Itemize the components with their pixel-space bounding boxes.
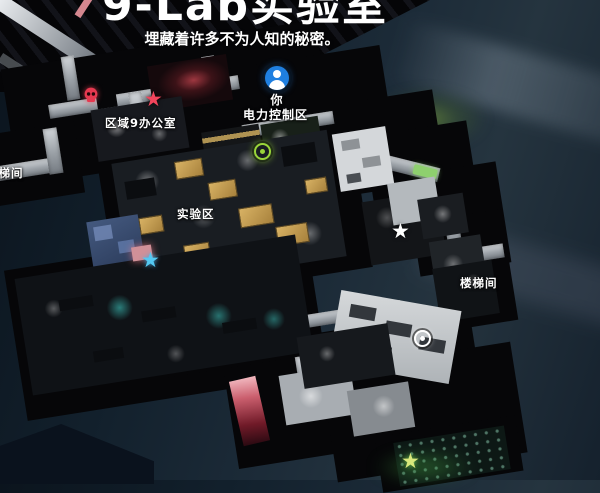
objective-star-cyan-icon: ★ — [141, 250, 160, 271]
area-label-stairwell-right: 楼梯间 — [460, 275, 498, 291]
objective-star-white-icon: ★ — [391, 221, 410, 242]
objective-star-red-icon: ★ — [144, 89, 163, 110]
area-label-zone9-office: 区域9办公室 — [105, 115, 177, 131]
player-head-glyph — [273, 70, 281, 78]
map-subtitle: 埋藏着许多不为人知的秘密。 — [144, 28, 339, 49]
waypoint-ring-white — [414, 330, 431, 347]
area-label-lab-zone: 实验区 — [177, 206, 215, 222]
waypoint-dot — [260, 149, 265, 154]
player-body-glyph — [269, 80, 285, 90]
waypoint-ring-green — [254, 143, 271, 160]
map-overlay: ★ 你 电力控制区 区域9办公室 实验区 楼梯间 楼梯间 ★ ★ ★ — [0, 0, 600, 480]
level-intro-screen: { "header": { "title": "9-Lab实验室", "subt… — [0, 0, 600, 480]
area-label-stairwell-left: 楼梯间 — [0, 165, 24, 181]
area-label-power-control: 电力控制区 — [243, 106, 308, 123]
objective-star-green-icon: ★ — [401, 451, 420, 472]
enemy-skull-icon — [82, 86, 100, 104]
waypoint-dot — [420, 336, 425, 341]
player-location-icon — [265, 66, 289, 90]
